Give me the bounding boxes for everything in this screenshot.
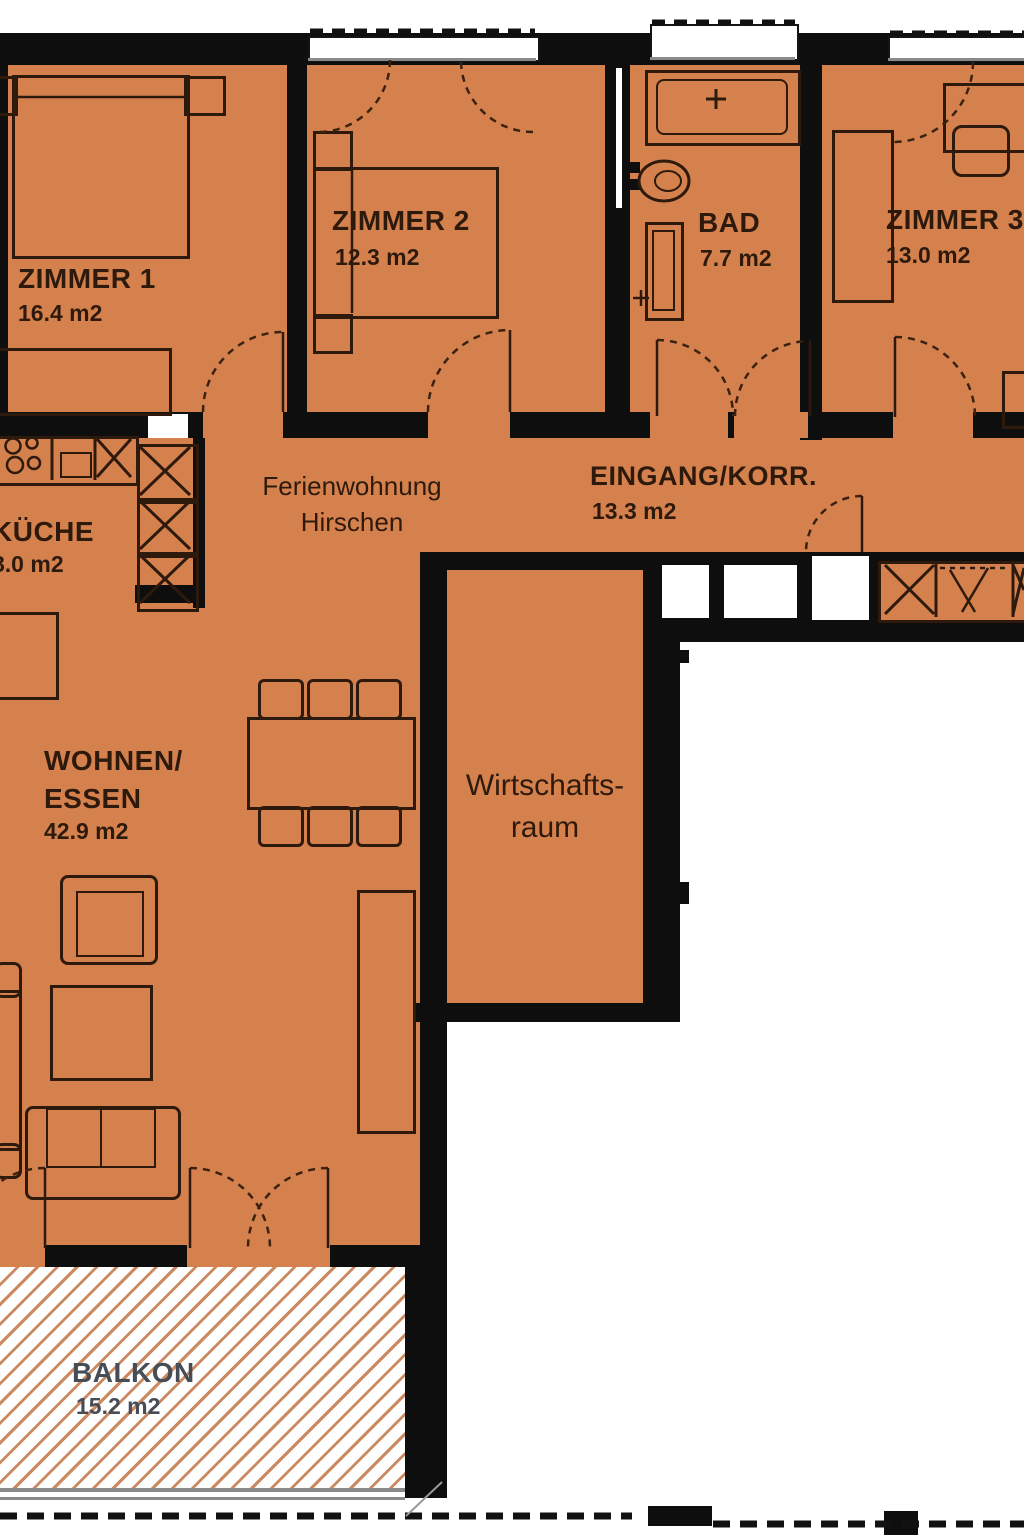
room-label-zimmer1: ZIMMER 1 — [18, 264, 156, 295]
door-opening-bad-left — [650, 412, 728, 438]
dining-chair-5 — [307, 806, 353, 847]
sideboard — [357, 890, 416, 1134]
plan-title: Ferienwohnung Hirschen — [237, 468, 467, 540]
chair-zimmer3 — [952, 125, 1010, 177]
outside-below-wr — [447, 1022, 680, 1536]
sofa-bottom-cushion-2 — [100, 1108, 156, 1168]
wall-wr-bottom — [415, 1003, 680, 1022]
boundary-solid-segment-1 — [648, 1506, 712, 1526]
room-label-zimmer3: ZIMMER 3 — [886, 205, 1024, 236]
room-label-essen: ESSEN — [44, 784, 141, 815]
boundary-solid-segment-2 — [884, 1511, 918, 1535]
room-area-zimmer2: 12.3 m2 — [335, 244, 419, 271]
outside-right — [680, 642, 1024, 1536]
room-area-zimmer3: 13.0 m2 — [886, 242, 970, 269]
coffee-table — [50, 985, 153, 1081]
kitchen-tall-cabinet-3 — [137, 552, 199, 612]
entry-wardrobe — [878, 561, 1024, 623]
door-opening-zimmer2 — [428, 412, 510, 438]
bed-zimmer1 — [12, 75, 190, 259]
room-area-wohnen: 42.9 m2 — [44, 818, 128, 845]
wall-balcony-right — [405, 1267, 447, 1498]
window-zimmer2-sill — [308, 58, 536, 61]
dining-chair-1 — [258, 679, 304, 720]
armchair-seat — [76, 891, 144, 957]
plan-title-line1: Ferienwohnung — [237, 468, 467, 504]
wall-living-bottom-left — [45, 1245, 187, 1267]
toilet-tank-mark-2 — [628, 179, 640, 190]
wirtschaftsraum-line1: Wirtschafts- — [447, 765, 643, 807]
wall-living-bottom-right — [330, 1245, 447, 1267]
room-label-eingang: EINGANG/KORR. — [590, 462, 817, 492]
door-opening-zimmer3 — [893, 412, 973, 438]
balcony-hatch — [0, 1267, 405, 1488]
toilet-tank-mark-1 — [628, 162, 640, 173]
dining-table — [247, 717, 416, 810]
nightstand-zimmer1-left — [0, 76, 18, 116]
wirtschaftsraum-line2: raum — [447, 807, 643, 849]
balcony-edge-line-2 — [0, 1497, 405, 1500]
dresser-zimmer1 — [0, 348, 172, 416]
sofa-bottom-cushion-1 — [46, 1108, 102, 1168]
bed-zimmer2 — [313, 167, 499, 319]
corridor-niche-2 — [724, 565, 797, 618]
bathtub-inner — [656, 79, 788, 135]
kitchen-tall-cabinet-1 — [137, 444, 199, 504]
corridor-niche-1 — [662, 565, 709, 618]
window-zimmer3-sill — [888, 58, 1024, 61]
nightstand-zimmer2-top — [313, 131, 353, 171]
room-label-balkon: BALKON — [72, 1358, 195, 1389]
wall-wr-top — [420, 552, 680, 570]
window-bad — [650, 24, 799, 61]
room-label-kueche: KÜCHE — [0, 517, 94, 548]
door-opening-bad-right — [734, 412, 808, 438]
wall-wr-left — [420, 552, 447, 1267]
wall-zimmer1-zimmer2 — [287, 50, 307, 432]
room-label-zimmer2: ZIMMER 2 — [332, 206, 470, 237]
window-bad-sill — [650, 57, 795, 60]
wall-wr-bump-1 — [678, 650, 689, 663]
nightstand-zimmer2-bottom — [313, 314, 353, 354]
kitchen-sink — [60, 452, 92, 478]
plan-title-line2: Hirschen — [237, 504, 467, 540]
dining-chair-3 — [356, 679, 402, 720]
entry-door-opening — [812, 556, 869, 620]
room-area-eingang: 13.3 m2 — [592, 498, 676, 525]
shower-cabinet-inner — [652, 230, 675, 311]
room-label-wohnen: WOHNEN/ — [44, 746, 183, 777]
dining-chair-6 — [356, 806, 402, 847]
sofa-left-armrest-bottom — [0, 1143, 22, 1179]
room-area-bad: 7.7 m2 — [700, 245, 772, 272]
wall-bad-zimmer3 — [800, 50, 822, 440]
wall-wr-right — [643, 552, 680, 1022]
room-area-balkon: 15.2 m2 — [76, 1393, 160, 1420]
room-area-kueche: 8.0 m2 — [0, 551, 64, 578]
wardrobe-zimmer3 — [832, 130, 894, 303]
dining-chair-2 — [307, 679, 353, 720]
balcony-edge-line-1 — [0, 1488, 405, 1492]
nightstand-zimmer1-right — [184, 76, 226, 116]
furniture-zimmer3-right-cut — [1002, 371, 1024, 429]
wall-wr-bump-2 — [678, 882, 689, 904]
room-area-zimmer1: 16.4 m2 — [18, 300, 102, 327]
kitchen-pass-through — [148, 414, 188, 438]
floor-plan: ZIMMER 1 16.4 m2 ZIMMER 2 12.3 m2 BAD 7.… — [0, 0, 1024, 1536]
room-label-bad: BAD — [698, 208, 760, 239]
kitchen-island — [0, 612, 59, 700]
dining-chair-4 — [258, 806, 304, 847]
room-label-wirtschaftsraum: Wirtschafts- raum — [447, 765, 643, 849]
sofa-left-body — [0, 990, 22, 1151]
wall-slit-zimmer2-bad — [616, 68, 622, 208]
door-opening-zimmer1 — [203, 412, 283, 438]
kitchen-tall-cabinet-2 — [137, 498, 199, 558]
